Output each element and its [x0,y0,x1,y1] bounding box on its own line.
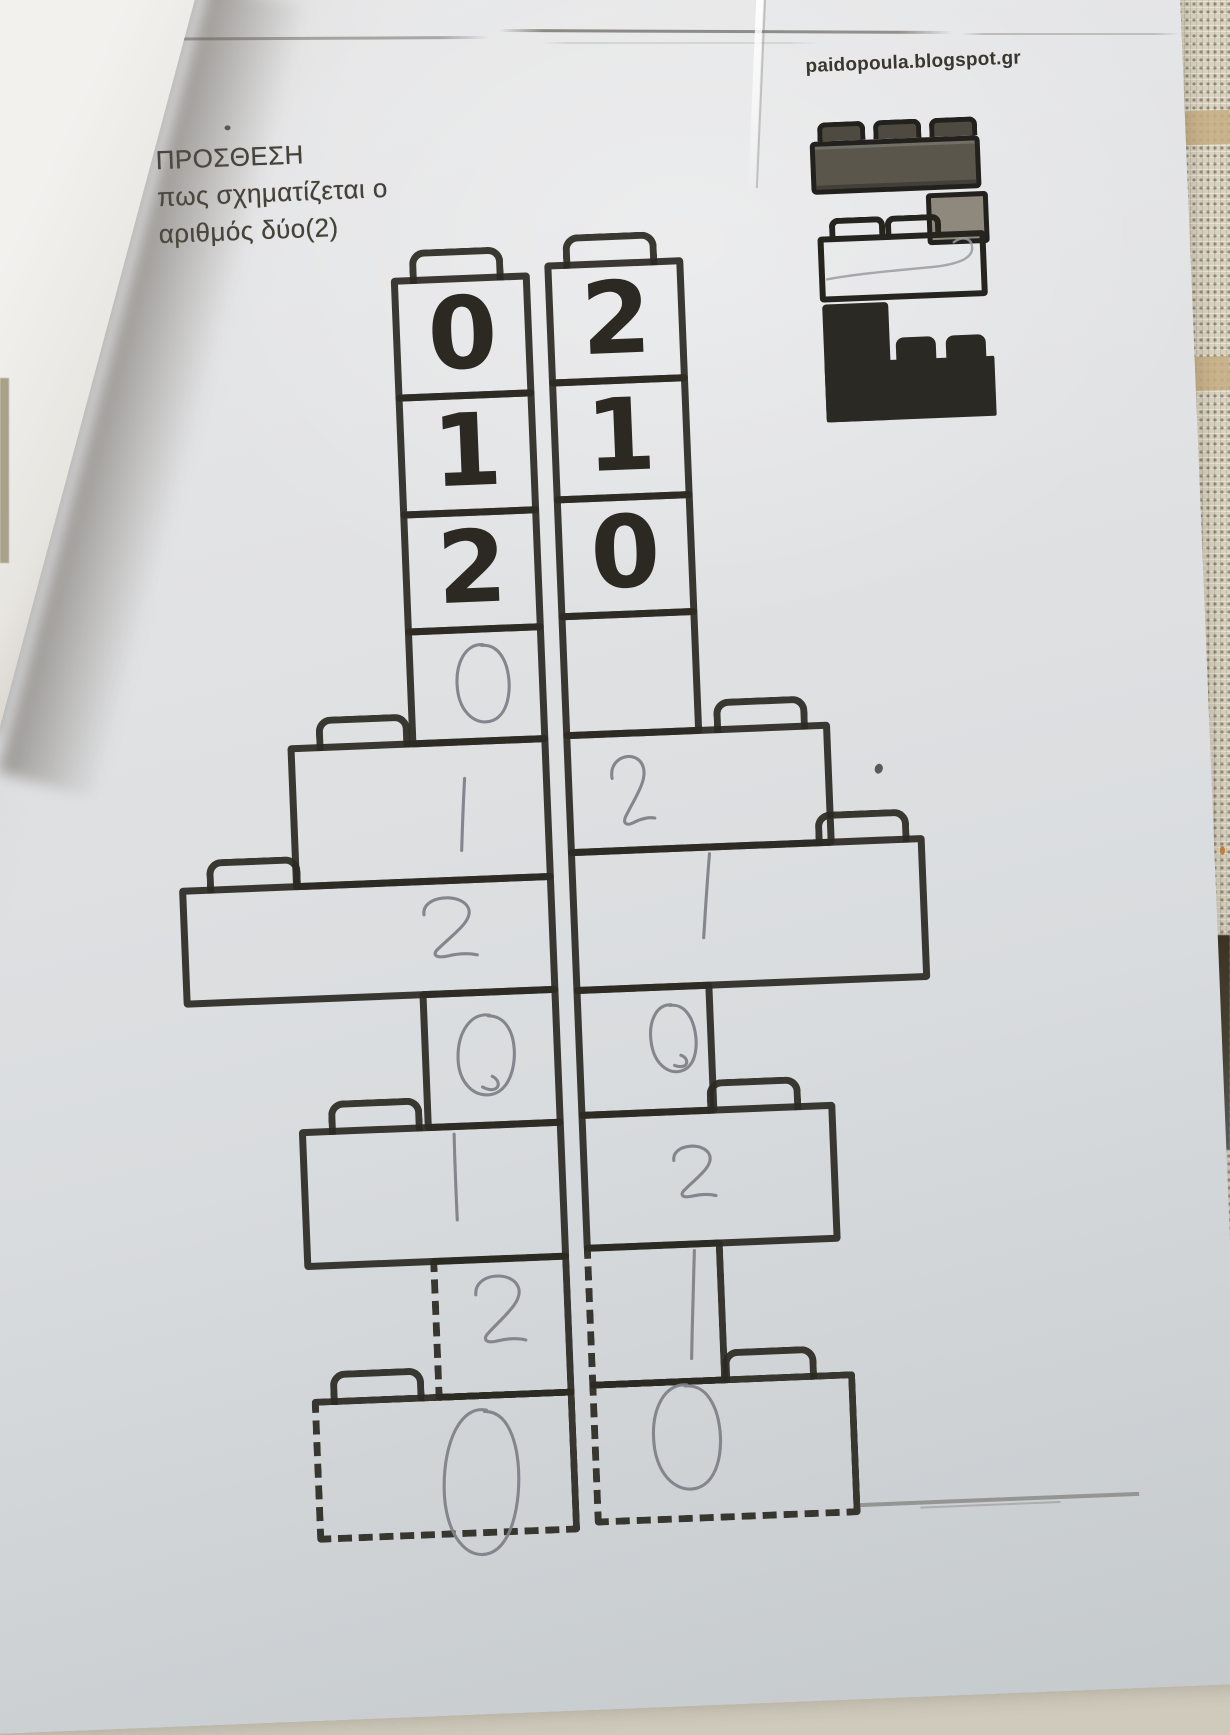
fabric-speck [1220,846,1225,855]
brick-stud [713,696,808,734]
watermark-url: paidopoula.blogspot.gr [805,47,1021,78]
logo-brick-stud [873,118,922,139]
stacked-bricks-logo [810,135,1005,428]
brick: 2 [544,257,688,386]
printed-digit: 0 [588,492,662,612]
brick [287,735,554,890]
brick [299,1119,569,1271]
ink-speck [873,763,884,775]
fold-crease [540,42,820,44]
handwritten-digit [445,1009,526,1105]
brick: 2 [400,506,544,635]
handwritten-digit [450,1265,544,1366]
logo-brick-stud [817,121,866,142]
brick [558,608,702,739]
fold-crease [962,33,1180,35]
handwritten-digit [690,846,723,945]
brick: 0 [554,491,698,620]
printed-digit: 2 [435,507,509,627]
handwritten-digit [448,772,478,856]
logo-brick-stud [945,334,986,360]
printed-digit: 1 [584,375,658,495]
brick-stud [315,714,410,752]
brick: 1 [549,374,693,503]
brick-stud [328,1097,423,1135]
printed-digit: 2 [579,258,653,378]
printed-digit: 0 [425,273,499,393]
brick-stud [206,856,301,894]
brick-stud [814,809,909,847]
logo-brick-stud [896,336,937,362]
photo-of-worksheet: { "photo": { "watermark_url": "paidopoul… [0,0,1230,1640]
handwritten-digit [635,1375,739,1506]
logo-black-brick [824,356,996,423]
logo-brick-stud [929,116,978,137]
handwritten-digit [594,745,667,848]
brick: 1 [395,389,539,518]
brick: 0 [391,272,535,401]
printed-digit: 1 [430,390,504,510]
brick-stud [706,1076,801,1114]
handwritten-digit [678,1242,709,1368]
handwritten-digit [399,888,495,978]
brick [568,835,931,994]
logo-dark-brick [810,135,982,195]
handwritten-digit [443,637,524,734]
handwritten-digit [636,996,711,1084]
handwritten-digit [653,1137,732,1216]
logo-pencil-scribble [822,235,984,297]
brick-stud [722,1346,817,1384]
fabric-sliver [0,378,9,563]
handwritten-digit [427,1400,535,1573]
brick-stud [330,1367,425,1405]
